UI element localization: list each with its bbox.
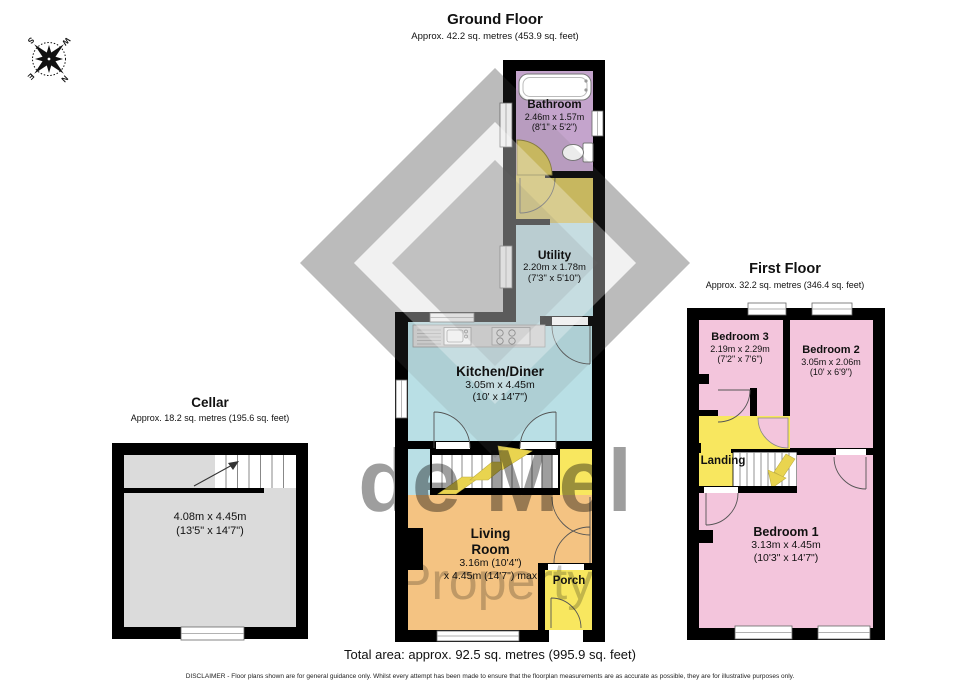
bedroom2-dims-ft: (10' x 6'9")	[786, 367, 876, 377]
front-door-opening	[549, 630, 583, 642]
cellar-subtitle: Approx. 18.2 sq. metres (195.6 sq. feet)	[85, 413, 335, 423]
cellar-title: Cellar	[110, 395, 310, 410]
bedroom1-label: Bedroom 1	[699, 525, 873, 539]
disclaimer-text: DISCLAIMER - Floor plans shown are for g…	[50, 673, 930, 680]
bedroom2-label: Bedroom 2	[786, 344, 876, 356]
bath-fixture	[519, 74, 591, 100]
first-floor-title: First Floor	[685, 261, 885, 277]
bedroom3-label: Bedroom 3	[693, 331, 787, 343]
stair-hall	[560, 449, 592, 495]
landing-label: Landing	[689, 455, 757, 468]
first-floor-subtitle: Approx. 32.2 sq. metres (346.4 sq. feet)	[660, 280, 910, 290]
bathroom-dims-m: 2.46m x 1.57m	[504, 112, 605, 122]
compass-n: N	[59, 73, 70, 84]
compass-e: E	[25, 71, 36, 82]
kitchen-label: Kitchen/Diner	[400, 364, 600, 379]
ground-floor-subtitle: Approx. 42.2 sq. metres (453.9 sq. feet)	[345, 32, 645, 43]
bedroom1-dims-ft: (10'3" x 14'7")	[699, 553, 873, 565]
ground-floor-title: Ground Floor	[385, 12, 605, 29]
bedroom3-dims-ft: (7'2" x 7'6")	[693, 354, 787, 364]
kitchen-dims-m: 3.05m x 4.45m	[400, 380, 600, 392]
compass-s: S	[25, 35, 36, 46]
kitchen-dims-ft: (10' x 14'7")	[400, 392, 600, 404]
utility-dims-ft: (7'3" x 5'10")	[504, 274, 605, 285]
cellar-dims-ft: (13'5" x 14'7")	[124, 525, 296, 537]
compass-w: W	[60, 35, 72, 47]
living-room-dims-1: 3.16m (10'4")	[398, 558, 583, 570]
bedroom2-room	[790, 320, 873, 448]
compass-rose-icon: N E S W	[25, 35, 72, 84]
bathroom-label: Bathroom	[504, 99, 605, 112]
cellar-dims-m: 4.08m x 4.45m	[124, 511, 296, 523]
bedroom1-dims-m: 3.13m x 4.45m	[699, 540, 873, 552]
living-room-label-1: Living	[398, 526, 583, 541]
utility-label: Utility	[504, 249, 605, 262]
porch-label: Porch	[543, 575, 595, 588]
floorplan-page: N E S W	[0, 0, 980, 690]
bedroom3-dims-m: 2.19m x 2.29m	[693, 344, 787, 354]
bedroom2-dims-m: 3.05m x 2.06m	[786, 357, 876, 367]
total-area-text: Total area: approx. 92.5 sq. metres (995…	[240, 648, 740, 663]
bathroom-dims-ft: (8'1" x 5'2")	[504, 122, 605, 132]
living-room-label-2: Room	[398, 542, 583, 557]
cellar-plan	[112, 443, 308, 640]
